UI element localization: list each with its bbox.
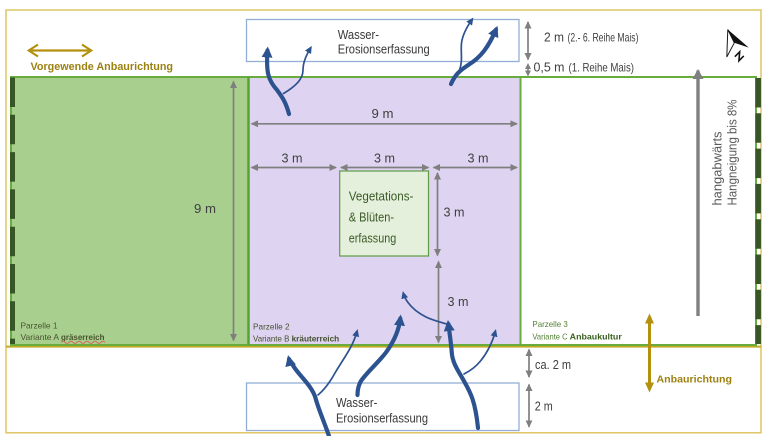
svg-text:3 m: 3 m — [448, 294, 469, 309]
svg-text:Parzelle 2: Parzelle 2 — [253, 322, 290, 331]
svg-text:(1. Reihe Mais): (1. Reihe Mais) — [569, 61, 635, 75]
svg-text:Vegetations-: Vegetations- — [349, 188, 414, 203]
svg-text:Vorgewende Anbaurichtung: Vorgewende Anbaurichtung — [31, 61, 174, 73]
svg-text:Parzelle 1: Parzelle 1 — [21, 322, 58, 331]
svg-text:Variante C Anbaukultur: Variante C Anbaukultur — [532, 333, 622, 342]
svg-text:(2.- 6. Reihe Mais): (2.- 6. Reihe Mais) — [568, 31, 639, 45]
svg-text:3 m: 3 m — [444, 205, 465, 220]
svg-text:Wasser-: Wasser- — [336, 395, 377, 410]
svg-text:Variante A gräserreich: Variante A gräserreich — [21, 333, 105, 342]
svg-text:0,5 m: 0,5 m — [534, 60, 565, 75]
svg-text:erfassung: erfassung — [349, 230, 396, 245]
svg-text:ca. 2 m: ca. 2 m — [535, 357, 571, 372]
svg-text:3 m: 3 m — [468, 151, 489, 166]
svg-text:2 m: 2 m — [544, 30, 564, 45]
svg-text:Hangneigung bis 8%: Hangneigung bis 8% — [726, 100, 740, 206]
svg-text:Parzelle 3: Parzelle 3 — [532, 320, 568, 329]
svg-text:Wasser-: Wasser- — [338, 27, 379, 42]
svg-text:Variante B kräuterreich: Variante B kräuterreich — [253, 334, 339, 343]
svg-text:Erosionserfassung: Erosionserfassung — [338, 42, 430, 57]
svg-text:Erosionserfassung: Erosionserfassung — [336, 411, 428, 426]
svg-text:9 m: 9 m — [194, 201, 216, 216]
svg-text:& Blüten-: & Blüten- — [349, 209, 394, 224]
svg-text:3 m: 3 m — [374, 151, 395, 166]
svg-text:3 m: 3 m — [282, 151, 303, 166]
svg-text:Anbaurichtung: Anbaurichtung — [657, 374, 733, 386]
svg-text:9 m: 9 m — [372, 106, 394, 121]
svg-text:hangabwärts: hangabwärts — [711, 132, 725, 206]
svg-text:2 m: 2 m — [535, 399, 553, 414]
